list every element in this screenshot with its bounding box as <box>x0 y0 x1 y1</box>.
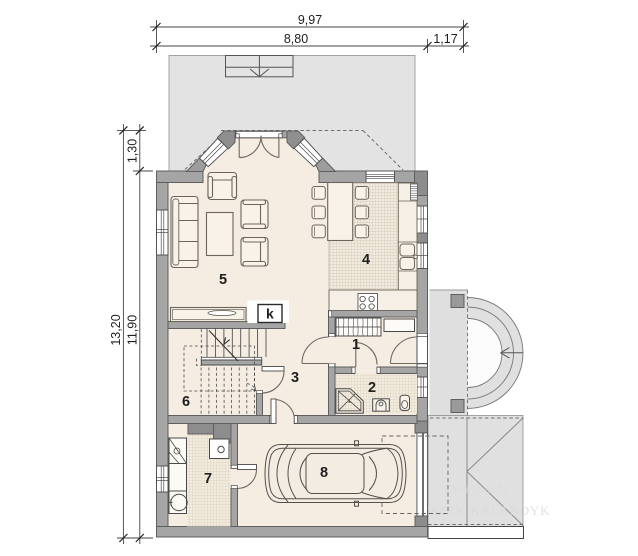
svg-text:LESZEK KALANDYK: LESZEK KALANDYK <box>413 503 550 518</box>
svg-text:6: 6 <box>182 394 190 410</box>
svg-text:1,30: 1,30 <box>126 139 140 163</box>
svg-text:7: 7 <box>204 471 212 487</box>
svg-text:13,20: 13,20 <box>109 314 123 345</box>
svg-text:5: 5 <box>219 272 227 288</box>
svg-text:1: 1 <box>352 337 360 353</box>
svg-text:k: k <box>266 306 274 322</box>
svg-text:8: 8 <box>320 465 328 481</box>
svg-text:3: 3 <box>291 370 299 386</box>
svg-text:9,97: 9,97 <box>298 13 322 27</box>
svg-text:4: 4 <box>362 252 370 268</box>
svg-text:11,90: 11,90 <box>126 315 140 345</box>
svg-text:8,80: 8,80 <box>284 32 308 46</box>
svg-text:Designed by: Designed by <box>444 481 510 496</box>
svg-text:1,17: 1,17 <box>433 32 457 46</box>
svg-text:2: 2 <box>368 380 376 396</box>
